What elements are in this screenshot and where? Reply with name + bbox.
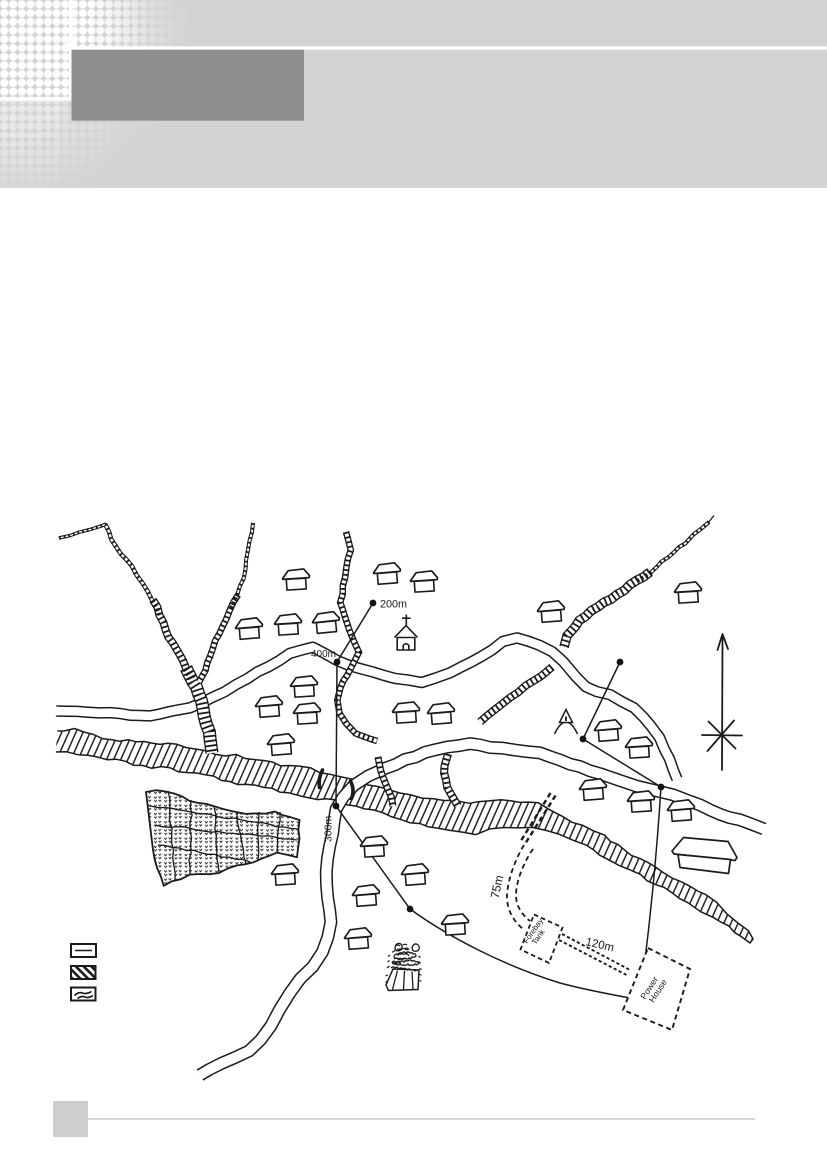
svg-text:300m: 300m (323, 815, 335, 842)
svg-text:200m: 200m (380, 599, 407, 611)
svg-text:400m: 400m (311, 649, 336, 660)
